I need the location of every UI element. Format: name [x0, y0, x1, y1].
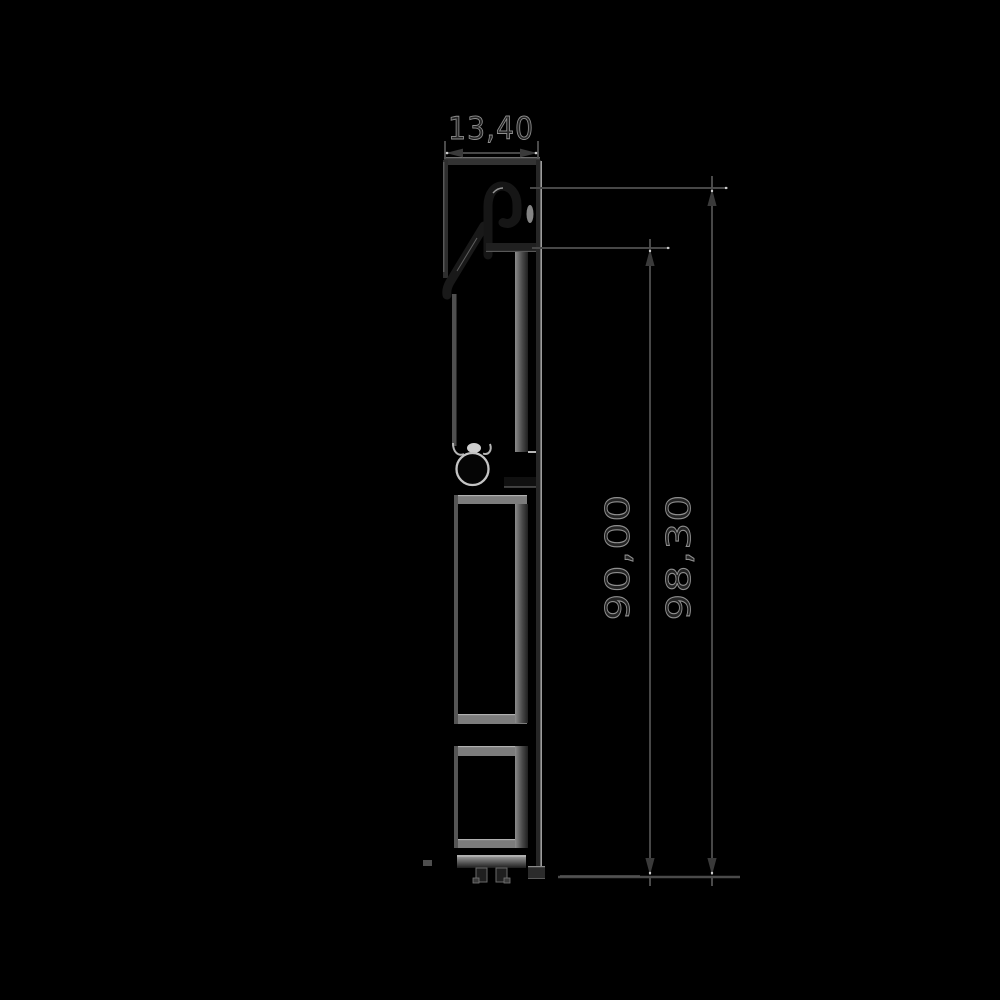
back-face-foot — [528, 866, 545, 879]
profile-drawing-svg: 13,40 90,00 98,30 — [0, 0, 1000, 1000]
hook-highlight — [527, 205, 534, 223]
dimension-label-outer-height: 98,30 — [659, 494, 698, 621]
dimension-label-top-width: 13,40 — [448, 111, 534, 147]
profile-bottom-foot — [423, 855, 526, 883]
dimension-inner-height: 90,00 — [532, 239, 670, 886]
foot-left-dash — [423, 860, 432, 866]
dimension-label-inner-height: 90,00 — [598, 494, 637, 621]
profile-diagonal-lip — [447, 226, 484, 295]
profile-back-face — [528, 160, 545, 879]
profile-left-outer-wall — [443, 160, 448, 278]
drawing-canvas: 13,40 90,00 98,30 — [0, 0, 1000, 1000]
profile-cross-section — [423, 157, 545, 883]
arrowhead-right — [520, 149, 537, 158]
profile-middle-chamber — [454, 495, 528, 724]
screw-boss-circle — [457, 453, 489, 485]
boss-right-bracket — [528, 452, 537, 469]
dimension-bottom-baseline — [558, 876, 740, 877]
arrowhead-left — [446, 149, 463, 158]
profile-hook-bottom-lip — [486, 243, 540, 252]
profile-right-wall-upper — [515, 252, 528, 452]
profile-top-cap — [444, 157, 540, 165]
profile-left-inner-wall — [452, 294, 457, 446]
boss-right-ledge — [504, 477, 539, 487]
dimension-top-width: 13,40 — [445, 111, 538, 159]
profile-lower-chamber — [454, 746, 528, 848]
screw-slot-highlight — [467, 443, 481, 453]
